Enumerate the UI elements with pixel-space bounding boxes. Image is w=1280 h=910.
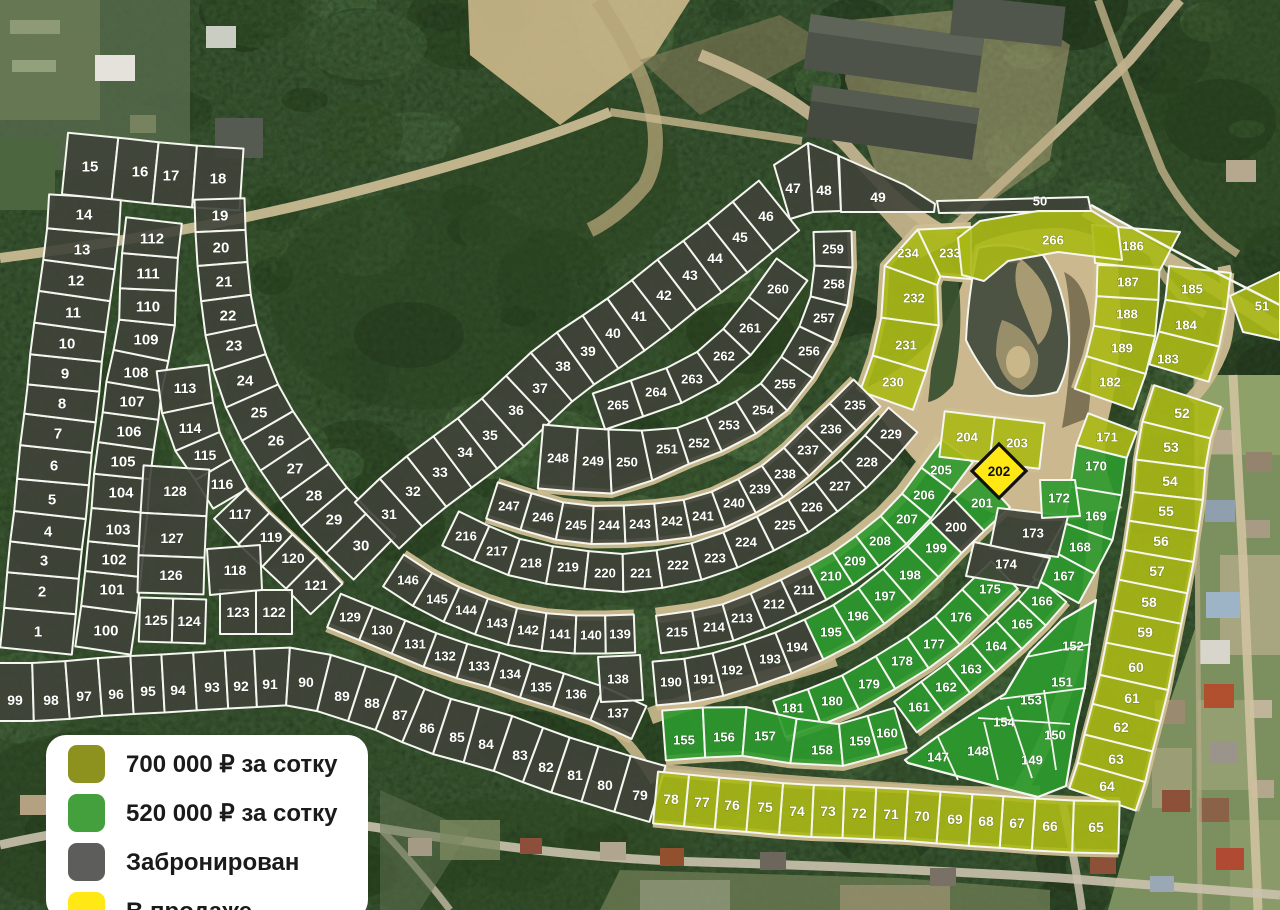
svg-text:141: 141 <box>549 627 571 642</box>
svg-text:8: 8 <box>58 395 66 412</box>
svg-text:40: 40 <box>605 325 621 341</box>
svg-text:166: 166 <box>1031 594 1053 609</box>
svg-text:95: 95 <box>140 683 156 699</box>
svg-text:96: 96 <box>108 686 124 702</box>
svg-text:194: 194 <box>786 640 808 655</box>
svg-text:93: 93 <box>204 679 220 695</box>
svg-text:159: 159 <box>849 734 871 749</box>
svg-text:118: 118 <box>224 562 247 578</box>
svg-text:67: 67 <box>1009 815 1025 831</box>
svg-text:78: 78 <box>663 791 679 807</box>
svg-text:15: 15 <box>82 158 99 175</box>
svg-text:12: 12 <box>68 272 85 289</box>
svg-text:42: 42 <box>656 287 672 303</box>
svg-text:207: 207 <box>896 512 918 527</box>
svg-text:9: 9 <box>61 365 69 382</box>
svg-text:248: 248 <box>547 451 569 466</box>
svg-text:60: 60 <box>1128 659 1144 675</box>
svg-text:21: 21 <box>216 273 233 290</box>
svg-text:143: 143 <box>486 616 508 631</box>
svg-text:198: 198 <box>899 568 921 583</box>
svg-text:54: 54 <box>1162 473 1178 489</box>
svg-text:117: 117 <box>229 506 252 522</box>
svg-text:127: 127 <box>160 530 184 546</box>
svg-text:266: 266 <box>1042 233 1064 248</box>
svg-text:204: 204 <box>956 430 978 445</box>
svg-text:84: 84 <box>478 736 494 752</box>
svg-text:13: 13 <box>74 241 91 258</box>
svg-text:169: 169 <box>1085 509 1107 524</box>
svg-text:183: 183 <box>1157 352 1179 367</box>
svg-text:39: 39 <box>580 343 596 359</box>
svg-text:26: 26 <box>268 432 285 449</box>
svg-text:45: 45 <box>732 229 748 245</box>
svg-text:230: 230 <box>882 375 904 390</box>
svg-text:48: 48 <box>816 182 832 198</box>
svg-text:99: 99 <box>7 692 23 708</box>
svg-text:92: 92 <box>233 678 249 694</box>
svg-text:79: 79 <box>632 787 648 803</box>
svg-text:121: 121 <box>304 577 328 593</box>
svg-text:218: 218 <box>520 556 542 571</box>
svg-text:172: 172 <box>1048 491 1070 506</box>
svg-text:43: 43 <box>682 267 698 283</box>
svg-text:41: 41 <box>631 308 647 324</box>
svg-text:249: 249 <box>582 454 604 469</box>
svg-text:23: 23 <box>226 337 243 354</box>
svg-text:227: 227 <box>829 479 851 494</box>
svg-text:150: 150 <box>1044 728 1066 743</box>
svg-text:76: 76 <box>724 797 740 813</box>
svg-text:128: 128 <box>163 483 187 499</box>
svg-text:107: 107 <box>119 393 144 410</box>
svg-text:103: 103 <box>105 521 130 538</box>
svg-text:251: 251 <box>656 442 678 457</box>
svg-text:10: 10 <box>59 335 76 352</box>
svg-text:31: 31 <box>381 506 397 522</box>
svg-text:64: 64 <box>1099 778 1115 794</box>
svg-text:174: 174 <box>995 557 1017 572</box>
svg-text:102: 102 <box>101 551 126 568</box>
svg-text:131: 131 <box>404 637 426 652</box>
svg-text:215: 215 <box>666 625 688 640</box>
svg-text:65: 65 <box>1088 819 1104 835</box>
svg-text:19: 19 <box>212 207 229 224</box>
svg-text:59: 59 <box>1137 624 1153 640</box>
svg-text:167: 167 <box>1053 569 1075 584</box>
svg-text:219: 219 <box>557 560 579 575</box>
svg-text:176: 176 <box>950 610 972 625</box>
svg-text:213: 213 <box>731 611 753 626</box>
svg-text:184: 184 <box>1175 318 1197 333</box>
svg-text:155: 155 <box>673 733 695 748</box>
svg-text:126: 126 <box>159 567 183 583</box>
svg-text:201: 201 <box>971 496 993 511</box>
svg-text:244: 244 <box>598 518 620 533</box>
svg-text:177: 177 <box>923 637 945 652</box>
svg-text:152: 152 <box>1062 639 1084 654</box>
svg-text:222: 222 <box>667 558 689 573</box>
svg-text:38: 38 <box>555 358 571 374</box>
svg-text:46: 46 <box>758 208 774 224</box>
svg-text:256: 256 <box>798 344 820 359</box>
svg-text:261: 261 <box>739 321 761 336</box>
svg-text:189: 189 <box>1111 341 1133 356</box>
svg-text:233: 233 <box>939 246 961 261</box>
svg-text:226: 226 <box>801 500 823 515</box>
svg-text:88: 88 <box>364 695 380 711</box>
svg-text:135: 135 <box>530 680 552 695</box>
svg-text:51: 51 <box>1255 299 1269 314</box>
svg-text:30: 30 <box>353 537 370 554</box>
svg-text:205: 205 <box>930 463 952 478</box>
svg-text:221: 221 <box>630 566 652 581</box>
svg-text:25: 25 <box>251 404 268 421</box>
svg-text:252: 252 <box>688 436 710 451</box>
svg-text:109: 109 <box>133 331 158 348</box>
svg-text:158: 158 <box>811 743 833 758</box>
svg-text:69: 69 <box>947 811 963 827</box>
svg-text:242: 242 <box>661 514 683 529</box>
svg-text:258: 258 <box>823 277 845 292</box>
svg-text:66: 66 <box>1042 818 1058 834</box>
svg-text:112: 112 <box>140 230 164 247</box>
svg-text:133: 133 <box>468 659 490 674</box>
svg-text:77: 77 <box>694 794 710 810</box>
svg-text:161: 161 <box>908 700 930 715</box>
svg-text:224: 224 <box>735 535 757 550</box>
svg-text:97: 97 <box>76 688 92 704</box>
svg-text:144: 144 <box>455 603 477 618</box>
svg-text:179: 179 <box>858 677 880 692</box>
svg-text:63: 63 <box>1108 751 1124 767</box>
svg-text:264: 264 <box>645 385 667 400</box>
svg-text:164: 164 <box>985 639 1007 654</box>
svg-text:105: 105 <box>110 453 135 470</box>
svg-text:58: 58 <box>1141 594 1157 610</box>
svg-text:259: 259 <box>822 242 844 257</box>
svg-text:162: 162 <box>935 680 957 695</box>
svg-text:181: 181 <box>782 701 804 716</box>
svg-text:231: 231 <box>895 338 917 353</box>
svg-text:228: 228 <box>856 455 878 470</box>
svg-text:70: 70 <box>914 808 930 824</box>
svg-text:85: 85 <box>449 729 465 745</box>
svg-text:186: 186 <box>1122 239 1144 254</box>
svg-text:52: 52 <box>1174 405 1190 421</box>
svg-text:241: 241 <box>692 509 714 524</box>
svg-text:238: 238 <box>774 467 796 482</box>
svg-text:246: 246 <box>532 510 554 525</box>
svg-text:36: 36 <box>508 402 524 418</box>
svg-text:72: 72 <box>851 805 867 821</box>
svg-text:33: 33 <box>432 464 448 480</box>
svg-text:147: 147 <box>927 750 949 765</box>
svg-text:195: 195 <box>820 625 842 640</box>
svg-text:75: 75 <box>757 799 773 815</box>
svg-text:101: 101 <box>99 581 124 598</box>
svg-text:199: 199 <box>925 541 947 556</box>
svg-text:200: 200 <box>945 520 967 535</box>
svg-text:145: 145 <box>426 592 448 607</box>
svg-text:520 000 ₽ за сотку: 520 000 ₽ за сотку <box>126 800 338 827</box>
svg-text:49: 49 <box>870 189 886 205</box>
svg-text:173: 173 <box>1022 526 1044 541</box>
svg-text:245: 245 <box>565 518 587 533</box>
svg-text:178: 178 <box>891 654 913 669</box>
svg-text:37: 37 <box>532 380 548 396</box>
svg-text:82: 82 <box>538 759 554 775</box>
svg-text:20: 20 <box>213 239 230 256</box>
svg-text:160: 160 <box>876 726 898 741</box>
svg-text:260: 260 <box>767 282 789 297</box>
svg-text:125: 125 <box>144 612 168 628</box>
svg-text:197: 197 <box>874 589 896 604</box>
svg-text:22: 22 <box>220 307 237 324</box>
svg-text:225: 225 <box>774 518 796 533</box>
svg-text:223: 223 <box>704 551 726 566</box>
svg-text:192: 192 <box>721 663 743 678</box>
svg-text:116: 116 <box>211 476 234 492</box>
svg-text:134: 134 <box>499 667 521 682</box>
svg-text:27: 27 <box>287 460 304 477</box>
svg-text:71: 71 <box>883 806 899 822</box>
svg-text:56: 56 <box>1153 533 1169 549</box>
svg-text:212: 212 <box>763 597 785 612</box>
svg-text:119: 119 <box>260 529 283 545</box>
svg-text:34: 34 <box>457 444 473 460</box>
svg-text:29: 29 <box>326 511 343 528</box>
svg-text:73: 73 <box>820 803 836 819</box>
svg-text:17: 17 <box>163 167 180 184</box>
svg-text:62: 62 <box>1113 719 1129 735</box>
svg-text:265: 265 <box>607 398 629 413</box>
svg-text:229: 229 <box>880 427 902 442</box>
svg-text:83: 83 <box>512 747 528 763</box>
svg-text:182: 182 <box>1099 375 1121 390</box>
svg-text:4: 4 <box>44 523 53 540</box>
svg-text:89: 89 <box>334 688 350 704</box>
svg-text:185: 185 <box>1181 282 1203 297</box>
svg-text:163: 163 <box>960 662 982 677</box>
svg-text:80: 80 <box>597 777 613 793</box>
svg-text:113: 113 <box>174 380 197 396</box>
svg-text:130: 130 <box>371 623 393 638</box>
svg-text:208: 208 <box>869 534 891 549</box>
svg-text:138: 138 <box>607 672 629 687</box>
svg-text:236: 236 <box>820 422 842 437</box>
svg-text:35: 35 <box>482 427 498 443</box>
svg-text:81: 81 <box>567 767 583 783</box>
svg-text:206: 206 <box>913 488 935 503</box>
svg-text:53: 53 <box>1163 439 1179 455</box>
svg-text:154: 154 <box>993 715 1015 730</box>
svg-text:47: 47 <box>785 180 801 196</box>
svg-text:196: 196 <box>847 609 869 624</box>
svg-text:16: 16 <box>132 163 149 180</box>
svg-text:91: 91 <box>262 676 278 692</box>
svg-text:114: 114 <box>179 420 202 436</box>
svg-text:254: 254 <box>752 403 774 418</box>
svg-text:142: 142 <box>517 623 539 638</box>
svg-text:234: 234 <box>897 246 919 261</box>
svg-text:129: 129 <box>339 610 361 625</box>
svg-text:50: 50 <box>1033 194 1047 209</box>
svg-text:2: 2 <box>38 583 46 600</box>
svg-text:14: 14 <box>76 206 93 223</box>
svg-text:263: 263 <box>681 372 703 387</box>
svg-text:106: 106 <box>116 423 141 440</box>
svg-text:153: 153 <box>1020 693 1042 708</box>
svg-text:115: 115 <box>194 447 217 463</box>
svg-text:86: 86 <box>419 720 435 736</box>
svg-text:7: 7 <box>54 425 62 442</box>
svg-text:111: 111 <box>136 265 159 282</box>
svg-text:165: 165 <box>1011 617 1033 632</box>
svg-text:209: 209 <box>844 554 866 569</box>
svg-text:24: 24 <box>237 372 254 389</box>
svg-text:214: 214 <box>703 620 725 635</box>
svg-text:3: 3 <box>40 552 48 569</box>
svg-text:57: 57 <box>1149 563 1165 579</box>
svg-text:87: 87 <box>392 707 408 723</box>
svg-text:100: 100 <box>93 622 118 639</box>
svg-text:11: 11 <box>65 304 81 321</box>
svg-text:700 000 ₽ за сотку: 700 000 ₽ за сотку <box>126 751 338 778</box>
svg-text:175: 175 <box>979 582 1001 597</box>
svg-text:240: 240 <box>723 496 745 511</box>
svg-text:90: 90 <box>298 674 314 690</box>
svg-text:243: 243 <box>629 517 651 532</box>
svg-text:217: 217 <box>486 544 508 559</box>
svg-text:239: 239 <box>749 482 771 497</box>
svg-text:255: 255 <box>774 377 796 392</box>
svg-text:140: 140 <box>580 628 602 643</box>
svg-text:190: 190 <box>660 675 682 690</box>
svg-text:187: 187 <box>1117 275 1139 290</box>
svg-text:191: 191 <box>693 672 715 687</box>
svg-text:203: 203 <box>1006 436 1028 451</box>
svg-text:168: 168 <box>1069 540 1091 555</box>
svg-text:156: 156 <box>713 730 735 745</box>
svg-text:188: 188 <box>1116 307 1138 322</box>
svg-text:250: 250 <box>616 455 638 470</box>
svg-text:132: 132 <box>434 649 456 664</box>
svg-text:216: 216 <box>455 529 477 544</box>
svg-text:171: 171 <box>1096 430 1118 445</box>
svg-text:137: 137 <box>607 706 629 721</box>
svg-text:136: 136 <box>565 687 587 702</box>
svg-text:32: 32 <box>405 483 421 499</box>
svg-text:18: 18 <box>210 170 227 187</box>
svg-text:Забронирован: Забронирован <box>126 849 299 876</box>
svg-text:120: 120 <box>281 550 305 566</box>
svg-text:202: 202 <box>988 464 1011 479</box>
svg-text:139: 139 <box>609 627 631 642</box>
svg-text:157: 157 <box>754 729 776 744</box>
svg-text:94: 94 <box>170 682 186 698</box>
svg-text:44: 44 <box>707 250 723 266</box>
svg-text:122: 122 <box>262 604 286 620</box>
svg-text:151: 151 <box>1051 675 1073 690</box>
svg-text:247: 247 <box>498 499 520 514</box>
svg-text:104: 104 <box>108 484 134 501</box>
svg-text:193: 193 <box>759 652 781 667</box>
svg-text:108: 108 <box>123 364 148 381</box>
svg-text:253: 253 <box>718 418 740 433</box>
svg-text:74: 74 <box>789 803 805 819</box>
svg-text:211: 211 <box>794 583 815 598</box>
svg-text:68: 68 <box>978 813 994 829</box>
svg-text:61: 61 <box>1124 690 1140 706</box>
svg-text:220: 220 <box>594 566 616 581</box>
svg-text:149: 149 <box>1021 753 1043 768</box>
svg-text:262: 262 <box>713 349 735 364</box>
svg-text:257: 257 <box>813 311 835 326</box>
svg-text:180: 180 <box>821 694 843 709</box>
svg-text:124: 124 <box>177 613 201 629</box>
svg-text:232: 232 <box>903 291 925 306</box>
svg-text:5: 5 <box>48 491 56 508</box>
svg-text:В продаже: В продаже <box>126 898 252 910</box>
svg-text:1: 1 <box>34 623 42 640</box>
svg-text:148: 148 <box>967 744 989 759</box>
svg-text:123: 123 <box>226 604 250 620</box>
svg-text:28: 28 <box>306 487 323 504</box>
svg-text:55: 55 <box>1158 503 1174 519</box>
svg-text:237: 237 <box>797 443 819 458</box>
svg-text:210: 210 <box>820 569 842 584</box>
svg-text:110: 110 <box>136 298 160 315</box>
svg-text:170: 170 <box>1085 459 1107 474</box>
svg-text:98: 98 <box>43 692 59 708</box>
svg-text:235: 235 <box>844 398 866 413</box>
svg-text:146: 146 <box>397 573 419 588</box>
svg-text:6: 6 <box>50 457 58 474</box>
